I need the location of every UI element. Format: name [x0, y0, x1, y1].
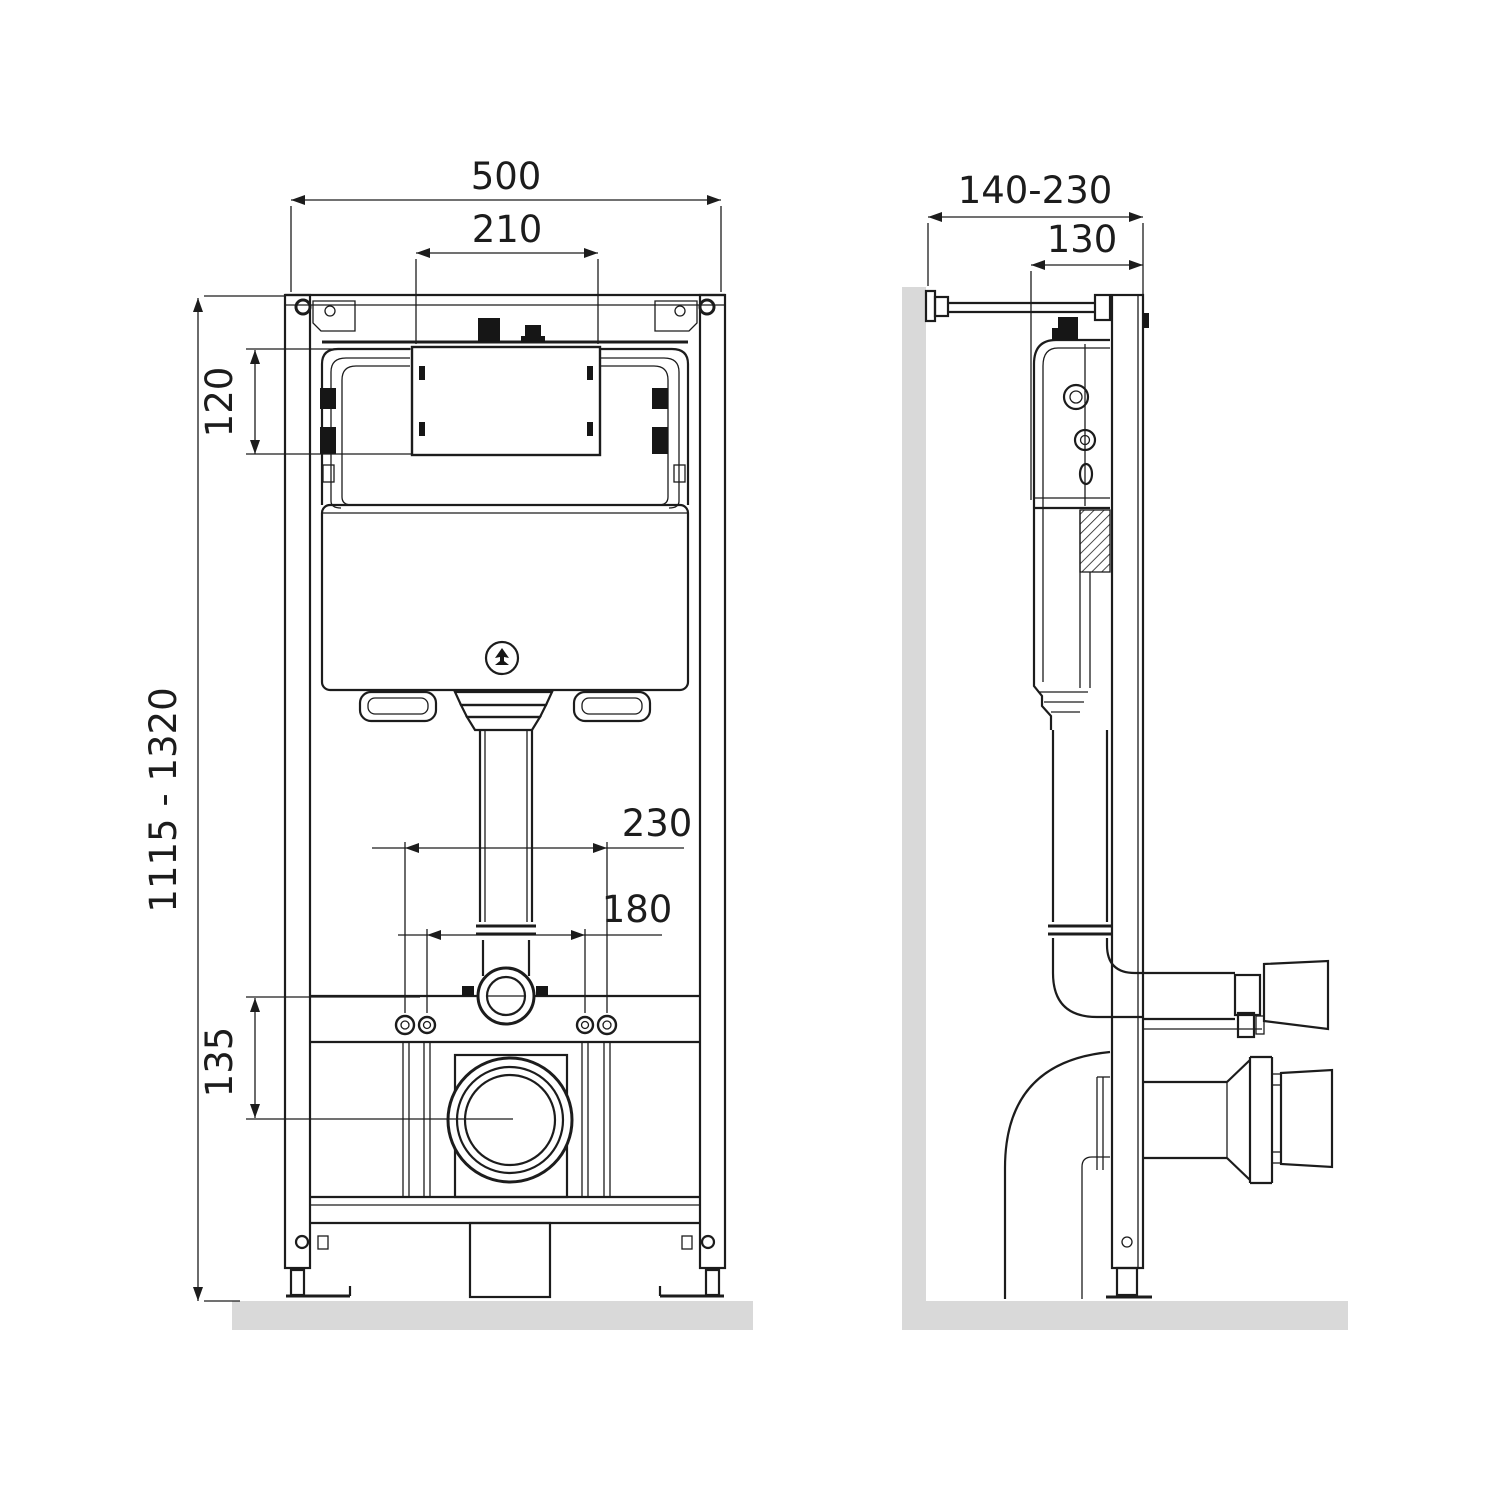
floor-side — [902, 1301, 1348, 1330]
dim-install-height: 1115 - 1320 — [142, 296, 286, 1301]
side-cistern — [1034, 317, 1110, 730]
flush-connector — [1143, 961, 1328, 1037]
dimensions-front: 500 210 120 1115 - 1320 — [142, 155, 721, 1301]
access-window — [412, 347, 600, 455]
drain-connector — [1143, 1057, 1332, 1183]
dim-opening-height: 120 — [198, 349, 412, 454]
dim-frame-depth: 130 — [1031, 218, 1143, 500]
dim-label-frame-width: 500 — [471, 155, 542, 198]
clamp-block — [652, 388, 668, 409]
p-trap — [1005, 1052, 1110, 1299]
lower-frame — [310, 1042, 700, 1297]
wall-anchor-rod — [926, 291, 1110, 321]
frame-left-post — [285, 295, 350, 1296]
drain-outlet-circle — [448, 1058, 572, 1182]
dim-label-outlet-center-height: 135 — [198, 1027, 241, 1098]
foam-section — [1080, 510, 1110, 572]
top-rail — [285, 295, 725, 331]
flush-cone — [1264, 961, 1328, 1029]
dim-label-install-height: 1115 - 1320 — [142, 687, 185, 912]
wc-frame-installation-diagram: 500 210 120 1115 - 1320 — [0, 0, 1500, 1500]
side-view — [902, 287, 1348, 1330]
flush-pipe-front — [476, 730, 536, 976]
frame-screw-hole — [296, 300, 310, 314]
clamp-block — [652, 427, 668, 454]
clamp-block — [320, 388, 336, 409]
cistern-outlets — [360, 692, 650, 730]
dim-label-stud-spacing-inner: 180 — [602, 888, 673, 931]
stud-nut — [1238, 1013, 1254, 1037]
inlet-connector — [521, 325, 545, 342]
dim-label-frame-depth: 130 — [1047, 218, 1118, 261]
frame-screw-hole — [700, 300, 714, 314]
dimensions-side: 140-230 130 — [928, 169, 1143, 500]
inlet-connector — [478, 318, 500, 342]
lever-slot — [1080, 464, 1092, 484]
brand-logo-icon — [486, 642, 518, 674]
pipe-latch — [462, 986, 474, 996]
window-clip — [587, 366, 593, 380]
window-clip — [419, 366, 425, 380]
clamp-block — [320, 427, 336, 454]
frame-right-post — [660, 295, 725, 1296]
technical-drawing-page: 500 210 120 1115 - 1320 — [0, 0, 1500, 1500]
dim-label-wall-offset: 140-230 — [958, 169, 1113, 212]
mounting-plate — [310, 968, 700, 1042]
dim-opening-width: 210 — [416, 208, 598, 344]
window-clip — [587, 422, 593, 436]
cistern-front — [320, 318, 688, 690]
inlet-connector-side — [1052, 317, 1078, 340]
dim-label-opening-width: 210 — [472, 208, 543, 251]
drain-cone — [1281, 1070, 1332, 1167]
floor-front — [232, 1301, 753, 1330]
flush-elbow — [1048, 730, 1143, 1017]
dim-label-stud-spacing-outer: 230 — [622, 802, 693, 845]
side-frame-post — [1106, 295, 1152, 1297]
window-clip — [419, 422, 425, 436]
drain-duct — [470, 1223, 550, 1297]
pipe-latch — [536, 986, 548, 996]
wall — [902, 287, 926, 1302]
bolt-end — [1143, 313, 1149, 328]
dim-label-opening-height: 120 — [198, 367, 241, 438]
